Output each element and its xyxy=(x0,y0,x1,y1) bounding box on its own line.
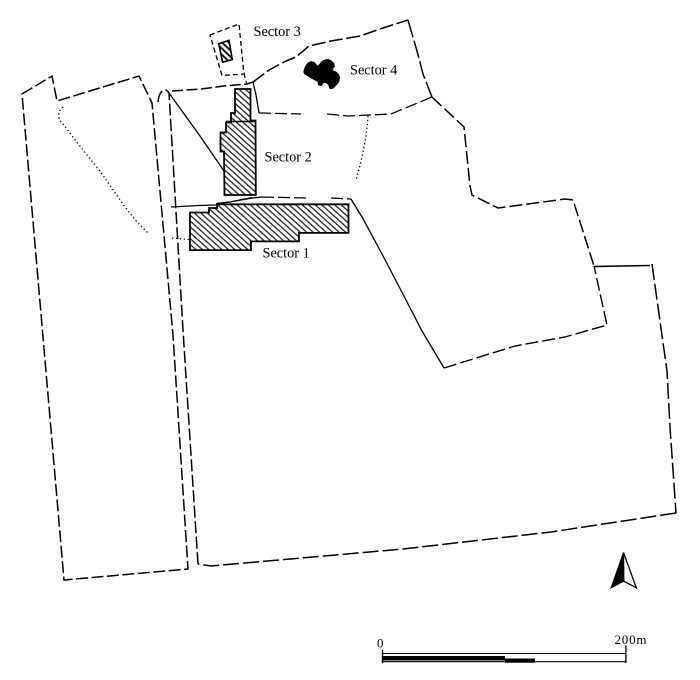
svg-text:Sector 3: Sector 3 xyxy=(254,24,301,40)
svg-text:Sector 4: Sector 4 xyxy=(350,62,397,78)
svg-text:Sector 2: Sector 2 xyxy=(265,150,312,166)
svg-text:0: 0 xyxy=(377,635,384,650)
svg-text:200m: 200m xyxy=(615,632,648,647)
svg-text:Sector 1: Sector 1 xyxy=(263,246,310,262)
